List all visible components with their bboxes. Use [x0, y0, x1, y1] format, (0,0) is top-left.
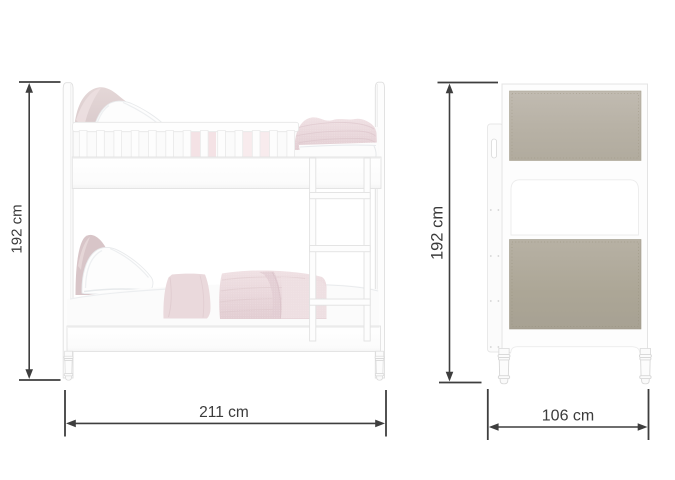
svg-text:192 cm: 192 cm: [429, 206, 447, 260]
svg-text:192 cm: 192 cm: [9, 204, 26, 253]
svg-text:211 cm: 211 cm: [199, 404, 249, 421]
svg-text:106 cm: 106 cm: [542, 408, 594, 425]
